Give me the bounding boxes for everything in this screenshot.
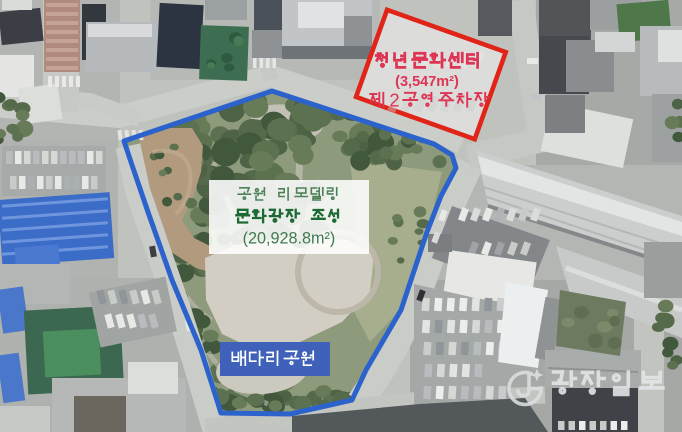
svg-text:2: 2 (389, 90, 399, 111)
svg-text:(3,547m²): (3,547m²) (395, 74, 459, 90)
svg-text:(20,928.8m²): (20,928.8m²) (243, 230, 336, 248)
